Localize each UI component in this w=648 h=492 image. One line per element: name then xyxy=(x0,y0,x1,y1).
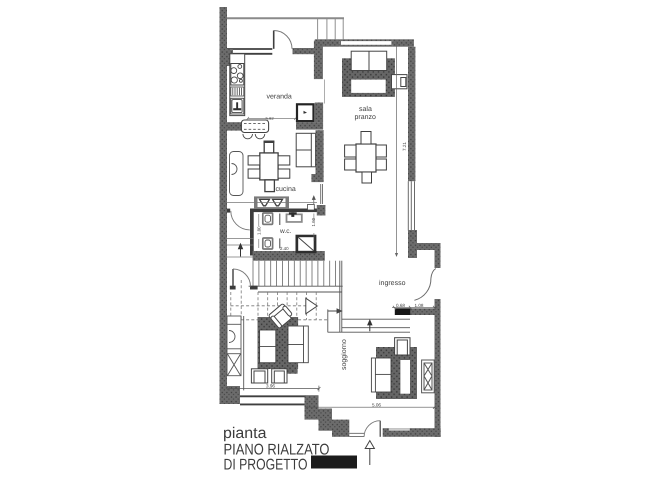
svg-text:pianta: pianta xyxy=(223,425,267,442)
svg-text:1.60: 1.60 xyxy=(311,217,316,226)
svg-text:7.21: 7.21 xyxy=(402,142,407,151)
svg-text:sala: sala xyxy=(359,105,372,113)
svg-text:w.c.: w.c. xyxy=(279,228,292,235)
svg-text:soggiorno: soggiorno xyxy=(340,339,348,370)
svg-text:cucina: cucina xyxy=(276,185,296,193)
svg-text:1.08: 1.08 xyxy=(415,303,424,308)
svg-text:pranzo: pranzo xyxy=(355,114,377,121)
svg-text:DI PROGETTO: DI PROGETTO xyxy=(224,457,308,474)
svg-text:3.96: 3.96 xyxy=(266,383,275,388)
svg-text:veranda: veranda xyxy=(267,93,292,101)
svg-text:ingresso: ingresso xyxy=(379,279,406,287)
svg-text:0.68: 0.68 xyxy=(396,303,405,308)
svg-text:5.06: 5.06 xyxy=(372,403,381,408)
svg-text:2.40: 2.40 xyxy=(280,246,289,251)
svg-text:1.80: 1.80 xyxy=(257,226,262,235)
